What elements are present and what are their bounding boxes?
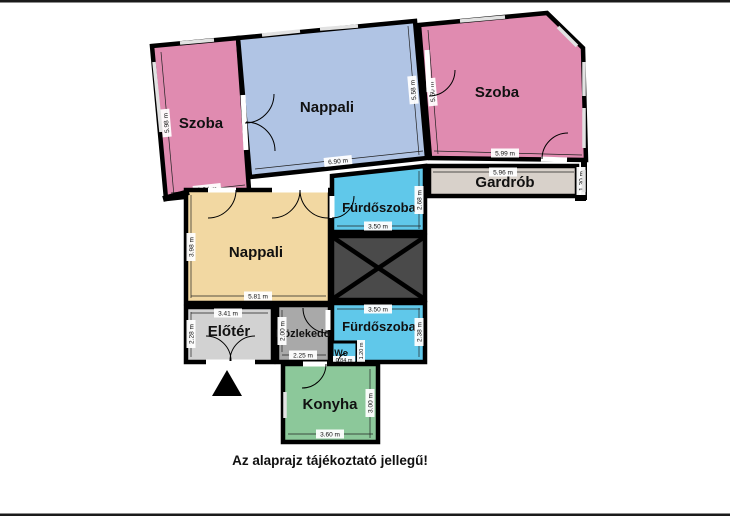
dimension-label: 5.96 m [489,168,517,177]
dimension-label: 2.28 m [187,320,196,348]
svg-text:3.00 m: 3.00 m [367,393,374,413]
door-opening [427,50,429,92]
room-szoba-left: Szoba 5.98 m 3.24 m [152,38,249,199]
svg-text:3.98 m: 3.98 m [188,237,195,257]
svg-text:3.50 m: 3.50 m [368,223,388,230]
dimension-label: 5.99 m [491,149,519,158]
dimension-label: 3.60 m [316,430,344,439]
room-label: Nappali [300,99,354,116]
dimension-label: 3.50 m [364,305,392,314]
svg-text:2.25 m: 2.25 m [293,352,313,359]
room-konyha: Konyha 3.60 m 3.00 m [283,364,378,442]
room-furdoszoba-top: Fürdőszoba 3.50 m 2.68 m [332,166,425,232]
room-szoba-right: Szoba 5.60 m 5.99 m [419,13,586,160]
room-label: Konyha [302,396,358,413]
room-nappali-middle: Nappali 5.81 m 3.98 m [186,190,330,303]
room-label: Szoba [179,115,224,132]
dimension-label: 3.98 m [187,233,196,261]
svg-text:3.41 m: 3.41 m [218,310,238,317]
svg-text:2.38 m: 2.38 m [416,322,423,342]
dimension-label: 1.20 m [357,340,365,362]
svg-text:1.20 m: 1.20 m [359,342,365,359]
room-label: Fürdőszoba [342,319,416,334]
dimension-label: 2.68 m [415,186,424,214]
dimension-label: 2.00 m [278,317,287,345]
svg-text:2.68 m: 2.68 m [416,190,423,210]
shaft [332,236,425,300]
svg-text:2.00 m: 2.00 m [279,321,286,341]
svg-text:2.28 m: 2.28 m [188,324,195,344]
svg-text:5.81 m: 5.81 m [248,293,268,300]
svg-text:5.96 m: 5.96 m [493,169,513,176]
svg-text:3.60 m: 3.60 m [320,431,340,438]
door-opening [541,159,567,160]
room-label: Gardrób [475,174,534,191]
dimension-label: 3.00 m [366,389,375,417]
room-nappali-top: Nappali 6.90 m 5.58 m [238,21,427,177]
floor-plan-canvas: Szoba 5.98 m 3.24 m Nappali 6.90 m 5.58 … [0,0,730,516]
dimension-label: 2.38 m [415,318,424,346]
room-label: Nappali [229,244,283,261]
svg-text:5.99 m: 5.99 m [495,150,515,157]
top-border-line [0,0,730,3]
dimension-label: 5.81 m [244,292,272,301]
room-gardrob: Gardrób 5.96 m 1.30 m [429,160,586,200]
room-wc: Wc 0.84 m 1.20 m [332,340,365,364]
room-label: Szoba [475,84,520,101]
disclaimer-note: Az alaprajz tájékoztató jellegű! [232,453,428,468]
dimension-label: 3.41 m [214,309,242,318]
floor-plan: Szoba 5.98 m 3.24 m Nappali 6.90 m 5.58 … [0,0,730,516]
dimension-label: 2.25 m [289,351,317,360]
dimension-label: 3.50 m [364,222,392,231]
svg-text:3.50 m: 3.50 m [368,306,388,313]
